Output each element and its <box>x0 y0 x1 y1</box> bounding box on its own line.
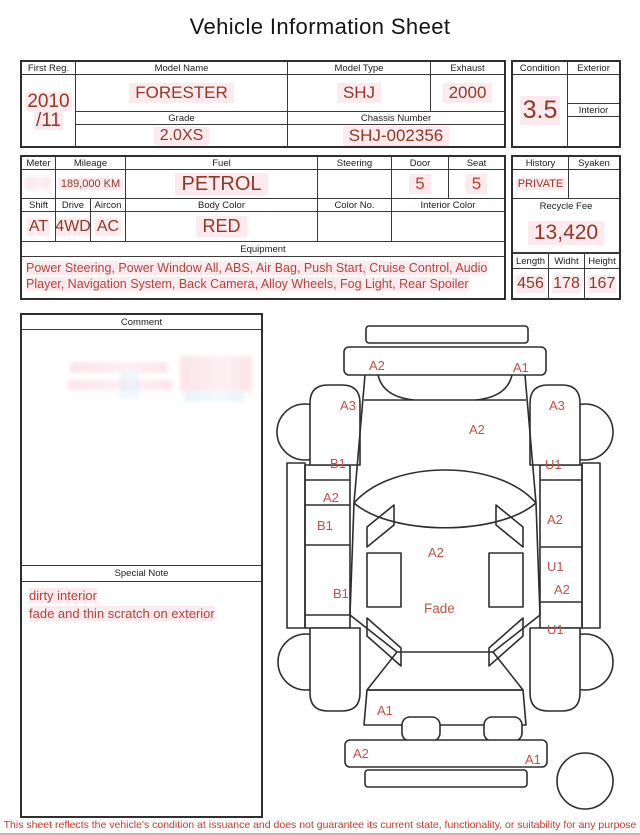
damage-label-a2: A2 <box>323 490 339 505</box>
rear-left-fender <box>310 628 360 711</box>
interior-color-header: Interior Color <box>392 199 504 212</box>
syaken-header: Syaken <box>569 157 619 170</box>
damage-label-a2: A2 <box>369 358 385 373</box>
drive-value: 4WD <box>56 212 91 242</box>
mileage-header: Mileage <box>56 157 126 170</box>
chassis-number-header: Chassis Number <box>288 112 504 125</box>
damage-label-a1: A1 <box>525 752 541 767</box>
left-sill <box>287 463 305 628</box>
damage-label-a3: A3 <box>340 398 356 413</box>
door-header: Door <box>392 157 449 170</box>
chassis-number-value: SHJ-002356 <box>288 125 504 146</box>
condition-value: 3.5 <box>513 75 568 146</box>
width-header: Widht <box>549 254 585 269</box>
height-value: 167 <box>585 269 619 298</box>
door-value: 5 <box>392 170 449 199</box>
damage-label-u1: U1 <box>547 559 564 574</box>
damage-label-u1: U1 <box>545 457 562 472</box>
color-no-header: Color No. <box>318 199 392 212</box>
seat-header: Seat <box>449 157 504 170</box>
special-note-body: dirty interior fade and thin scratch on … <box>22 582 261 816</box>
right-sill <box>582 463 600 628</box>
damage-label-a3: A3 <box>549 398 565 413</box>
length-header: Length <box>513 254 549 269</box>
length-value: 456 <box>513 269 549 298</box>
scan-ghost <box>25 176 51 190</box>
equipment-header: Equipment <box>22 242 504 257</box>
rear-bumper <box>345 740 547 767</box>
front-left-fender <box>310 385 360 465</box>
damage-label-a2: A2 <box>353 746 369 761</box>
top-info-table: First Reg. Model Name Model Type Exhaust… <box>20 60 506 148</box>
model-name-value: FORESTER <box>76 75 288 112</box>
scan-ghost <box>70 362 168 373</box>
equipment-value: Power Steering, Power Window All, ABS, A… <box>22 257 504 298</box>
damage-label-a1: A1 <box>513 360 529 375</box>
drive-header: Drive <box>56 199 91 212</box>
interior-header: Interior <box>568 104 619 117</box>
scan-ghost <box>180 356 252 392</box>
page-title: Vehicle Information Sheet <box>0 14 640 40</box>
model-name-header: Model Name <box>76 62 288 75</box>
rear-bottom-bar <box>365 770 527 787</box>
shift-value: AT <box>22 212 56 242</box>
history-recycle-panel: History Syaken PRIVATE Recycle Fee 13,42… <box>511 155 621 300</box>
windshield <box>354 470 536 528</box>
damage-label-b1: B1 <box>330 456 346 471</box>
exterior-value <box>568 75 619 104</box>
special-note-line: fade and thin scratch on exterior <box>29 605 254 623</box>
scan-ghost <box>120 372 138 398</box>
fuel-header: Fuel <box>126 157 318 170</box>
mileage-value: 189,000 KM <box>56 170 126 199</box>
disclaimer-text: This sheet reflects the vehicle's condit… <box>0 819 640 831</box>
comment-body <box>22 330 261 565</box>
front-right-fender <box>530 385 580 465</box>
damage-label-a2: A2 <box>428 545 444 560</box>
comment-box: Comment Special Note dirty interior fade… <box>20 313 263 818</box>
interior-value <box>568 117 619 146</box>
first-reg-value: 2010 /11 <box>22 75 76 146</box>
history-header: History <box>513 157 569 170</box>
recycle-fee-value: 13,420 <box>513 213 619 254</box>
damage-label-fade: Fade <box>424 601 455 616</box>
damage-label-b1: B1 <box>317 518 333 533</box>
model-type-header: Model Type <box>288 62 431 75</box>
grade-header: Grade <box>76 112 288 125</box>
exhaust-header: Exhaust <box>431 62 504 75</box>
steering-value <box>318 170 392 199</box>
grade-value: 2.0XS <box>76 125 288 146</box>
body-color-value: RED <box>126 212 318 242</box>
seat-value: 5 <box>449 170 504 199</box>
scan-ghost <box>184 392 244 402</box>
steering-header: Steering <box>318 157 392 170</box>
special-note-line: dirty interior <box>29 587 254 605</box>
damage-label-a1: A1 <box>377 703 393 718</box>
color-no-value <box>318 212 392 242</box>
body-color-header: Body Color <box>126 199 318 212</box>
fuel-value: PETROL <box>126 170 318 199</box>
front-top-bar <box>366 326 528 343</box>
interior-color-value <box>392 212 504 242</box>
comment-header: Comment <box>22 315 261 330</box>
special-note-header: Special Note <box>22 565 261 582</box>
car-diagram: A2A1A3A3A2B1U1A2B1A2A2U1A2B1FadeU1A1A2A1 <box>266 313 638 815</box>
damage-label-a2: A2 <box>547 512 563 527</box>
condition-panel: Condition 3.5 Exterior Interior <box>511 60 621 148</box>
syaken-value <box>569 170 619 199</box>
meter-value <box>22 170 56 199</box>
condition-header: Condition <box>513 62 568 75</box>
left-tail-light <box>402 717 440 741</box>
height-header: Height <box>585 254 619 269</box>
recycle-fee-header: Recycle Fee <box>513 199 619 213</box>
spare-wheel <box>557 753 613 809</box>
history-value: PRIVATE <box>513 170 569 199</box>
damage-label-b1: B1 <box>333 586 349 601</box>
damage-label-a2: A2 <box>554 582 570 597</box>
exhaust-value: 2000 <box>431 75 504 112</box>
damage-label-u1: U1 <box>547 622 564 637</box>
meter-header: Meter <box>22 157 56 170</box>
aircon-value: AC <box>91 212 126 242</box>
exterior-header: Exterior <box>568 62 619 75</box>
right-tail-light <box>484 717 522 741</box>
model-type-value: SHJ <box>288 75 431 112</box>
scan-ghost <box>68 380 172 390</box>
damage-label-a2: A2 <box>469 422 485 437</box>
spec-table: Meter Mileage Fuel Steering Door Seat 18… <box>20 155 506 300</box>
aircon-header: Aircon <box>91 199 126 212</box>
shift-header: Shift <box>22 199 56 212</box>
first-reg-header: First Reg. <box>22 62 76 75</box>
rear-right-fender <box>530 628 580 711</box>
width-value: 178 <box>549 269 585 298</box>
